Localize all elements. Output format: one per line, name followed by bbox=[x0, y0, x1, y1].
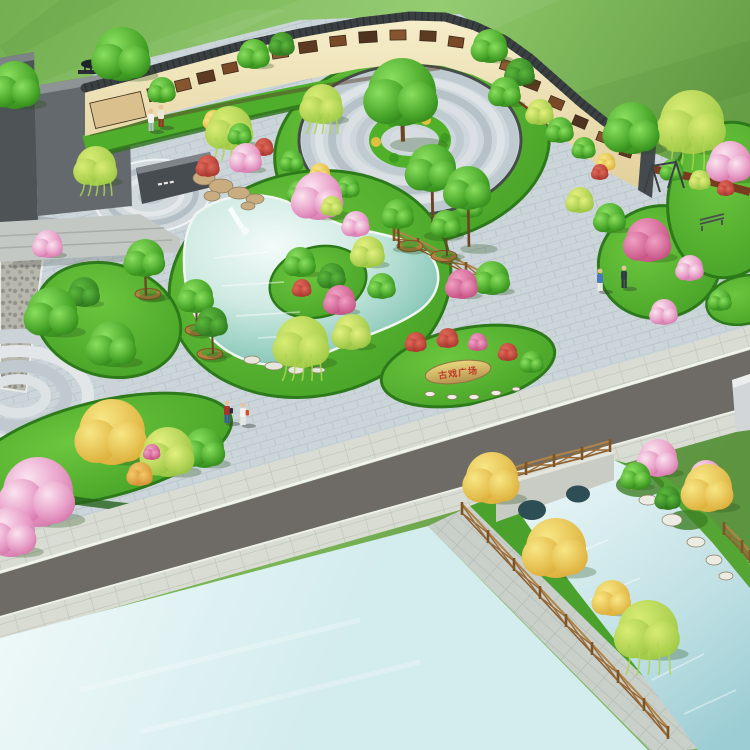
rockery-rock bbox=[241, 202, 255, 210]
tree-canopy bbox=[599, 170, 609, 180]
tree-canopy bbox=[507, 349, 518, 360]
tree-shadow bbox=[460, 244, 497, 254]
tree-canopy bbox=[558, 126, 574, 142]
person-bag bbox=[246, 410, 249, 416]
tree-canopy bbox=[608, 214, 626, 232]
person-legs bbox=[600, 282, 602, 291]
tree-canopy bbox=[354, 220, 370, 236]
tree-shadow bbox=[207, 352, 233, 359]
tree-canopy bbox=[530, 359, 543, 372]
tree-canopy bbox=[380, 282, 396, 298]
person-legs bbox=[227, 414, 229, 423]
wall-mural-panel bbox=[448, 36, 464, 48]
tree-canopy bbox=[331, 203, 343, 215]
wall-mural-panel bbox=[420, 31, 437, 42]
fence-post bbox=[617, 670, 620, 683]
person-bag bbox=[230, 408, 233, 414]
tree-canopy bbox=[46, 240, 63, 257]
tree-canopy bbox=[244, 154, 262, 172]
tree-canopy bbox=[396, 210, 414, 228]
canal-rock bbox=[639, 495, 657, 505]
tree-canopy bbox=[490, 273, 510, 293]
canal-rock bbox=[706, 555, 722, 565]
tree-canopy bbox=[346, 184, 359, 197]
tree-canopy bbox=[298, 258, 316, 276]
tree-canopy bbox=[290, 158, 303, 171]
tree-canopy bbox=[725, 186, 735, 196]
canal-rock bbox=[719, 572, 733, 580]
wall-mural-panel bbox=[390, 30, 406, 40]
tree-canopy bbox=[552, 539, 588, 575]
canal-rock bbox=[662, 514, 682, 526]
tree-canopy bbox=[662, 308, 678, 324]
tree-canopy bbox=[118, 46, 150, 78]
tree-canopy bbox=[238, 131, 251, 144]
tree-canopy bbox=[366, 247, 385, 266]
tree-canopy bbox=[655, 452, 678, 475]
tree-canopy bbox=[280, 40, 294, 54]
tree-canopy bbox=[151, 450, 161, 460]
tree-canopy bbox=[210, 318, 228, 336]
tree-canopy bbox=[138, 470, 152, 484]
tree-canopy bbox=[503, 88, 521, 106]
canal-rock bbox=[687, 537, 705, 547]
tree-canopy bbox=[634, 472, 651, 489]
stonebed-rock bbox=[425, 392, 435, 397]
tree-canopy bbox=[460, 280, 478, 298]
person-legs bbox=[225, 414, 227, 423]
fence-post bbox=[591, 642, 594, 655]
tree-canopy bbox=[206, 163, 219, 176]
stonebed-rock bbox=[491, 391, 501, 396]
tree-canopy bbox=[338, 296, 356, 314]
fence-post bbox=[667, 726, 670, 739]
tree-canopy bbox=[301, 285, 312, 296]
tree-canopy bbox=[578, 196, 594, 212]
person-legs bbox=[159, 118, 161, 127]
tree-canopy bbox=[688, 264, 704, 280]
person-legs bbox=[151, 122, 153, 131]
rendering-canvas: 古戏广场 bbox=[0, 0, 750, 750]
person-head bbox=[241, 403, 246, 408]
tree-canopy bbox=[263, 144, 274, 155]
tree-canopy bbox=[201, 442, 225, 466]
tree-canopy bbox=[582, 145, 595, 158]
fence-post bbox=[723, 522, 726, 535]
fence-post bbox=[525, 462, 528, 475]
fence-post bbox=[581, 447, 584, 460]
tree-shadow bbox=[393, 246, 419, 253]
person-body bbox=[224, 406, 230, 415]
person-legs bbox=[624, 279, 626, 288]
tree-canopy bbox=[415, 339, 427, 351]
person-body bbox=[240, 408, 246, 417]
stonebed-rock bbox=[447, 395, 457, 400]
tree-canopy bbox=[699, 177, 711, 189]
tree-canopy bbox=[7, 525, 37, 555]
waterfall-foam bbox=[241, 227, 249, 235]
tree-canopy bbox=[109, 337, 137, 365]
tree-canopy bbox=[518, 68, 535, 85]
person-body bbox=[597, 274, 603, 283]
person-body bbox=[148, 114, 154, 123]
tree-canopy bbox=[142, 252, 165, 275]
person-body bbox=[158, 110, 164, 119]
fence-post bbox=[539, 586, 542, 599]
person-body bbox=[621, 271, 627, 280]
wall-mural-panel bbox=[359, 31, 378, 43]
person-legs bbox=[243, 416, 245, 425]
wall-mural-panel bbox=[298, 40, 317, 53]
tree-canopy bbox=[718, 297, 731, 310]
tree-canopy bbox=[666, 494, 680, 508]
tree-canopy bbox=[33, 482, 75, 524]
person-legs bbox=[161, 118, 163, 127]
tree-canopy bbox=[488, 470, 519, 501]
person-legs bbox=[149, 122, 151, 131]
fence-post bbox=[513, 558, 516, 571]
fence-post bbox=[393, 228, 396, 241]
person-head bbox=[622, 266, 627, 271]
tree-canopy bbox=[645, 233, 671, 259]
pond-rock bbox=[244, 356, 260, 364]
stonebed-rock bbox=[512, 387, 520, 391]
rockery-rock bbox=[204, 191, 220, 201]
fence-post bbox=[741, 540, 744, 553]
tree-canopy bbox=[465, 181, 491, 207]
person-head bbox=[225, 401, 230, 406]
person-head bbox=[159, 105, 164, 110]
tree-canopy bbox=[477, 339, 488, 350]
tree-canopy bbox=[349, 327, 371, 349]
tree-canopy bbox=[12, 78, 41, 107]
fence-post bbox=[609, 439, 612, 452]
fence-post bbox=[565, 614, 568, 627]
tree-canopy bbox=[628, 120, 659, 151]
tree-canopy bbox=[160, 86, 176, 102]
tree-canopy bbox=[444, 220, 461, 237]
tree-canopy bbox=[82, 288, 100, 306]
fence-post bbox=[461, 502, 464, 515]
tree-canopy bbox=[488, 41, 508, 61]
tree-shadow bbox=[138, 293, 170, 301]
tree-canopy bbox=[705, 481, 734, 510]
person-legs bbox=[241, 416, 243, 425]
landscape-aerial-rendering: 古戏广场 bbox=[0, 0, 750, 750]
person-head bbox=[149, 109, 154, 114]
tree-canopy bbox=[397, 82, 438, 123]
person-head bbox=[598, 269, 603, 274]
fence-post bbox=[487, 530, 490, 543]
tree-canopy bbox=[49, 305, 79, 335]
tree-canopy bbox=[447, 335, 459, 347]
tree-canopy bbox=[252, 50, 270, 68]
tree-shadow bbox=[441, 254, 465, 260]
tree-canopy bbox=[165, 445, 195, 475]
person-legs bbox=[598, 282, 600, 291]
wall-mural-panel bbox=[330, 35, 347, 47]
fence-post bbox=[643, 698, 646, 711]
stonebed-rock bbox=[469, 395, 479, 400]
person-legs bbox=[622, 279, 624, 288]
fence-post bbox=[553, 454, 556, 467]
